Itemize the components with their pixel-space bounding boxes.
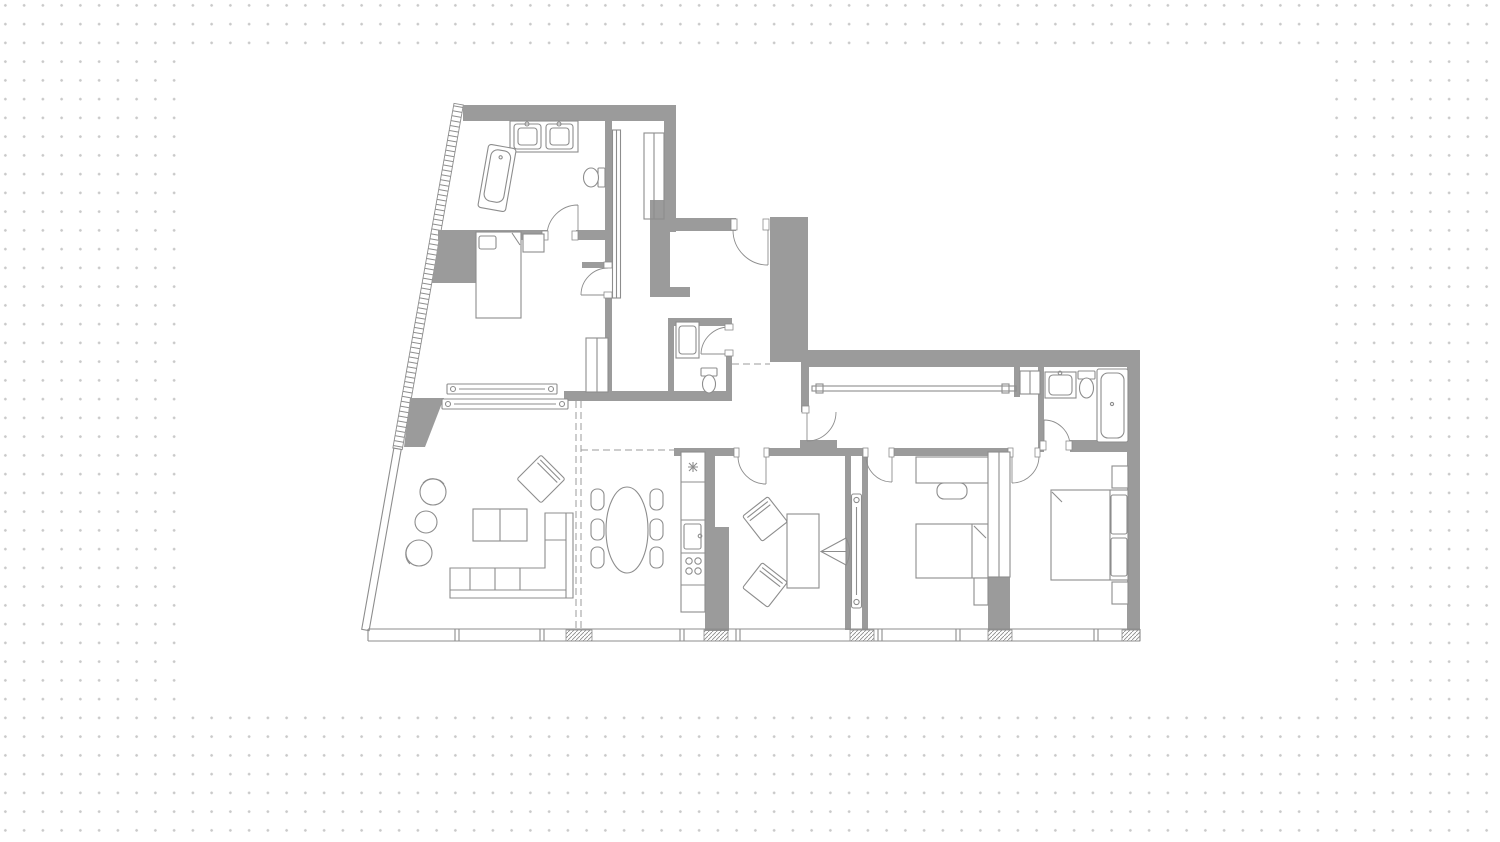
dining-area	[591, 487, 663, 573]
master-bathroom	[478, 121, 605, 212]
wall-wing-top	[808, 350, 1140, 367]
facade-panel-hatch	[1122, 630, 1140, 641]
lounge-chair-icon	[420, 479, 446, 505]
nightstand	[1112, 466, 1128, 488]
wall-wedge-lower	[404, 398, 444, 447]
sink-icon	[1045, 371, 1076, 398]
desk-icon	[916, 457, 988, 483]
toilet-icon	[584, 168, 606, 187]
living-room	[406, 455, 573, 598]
side-table-icon	[415, 511, 437, 533]
wall-rooms-top-2	[766, 448, 866, 456]
south-window-wall	[368, 629, 1140, 641]
desk-icon	[787, 514, 819, 588]
study	[743, 494, 862, 608]
nightstand	[1112, 582, 1128, 604]
bed-icon	[476, 232, 521, 318]
sliding-door-icon	[852, 494, 862, 608]
floor-plan-drawing	[0, 0, 1500, 842]
wall-kitchen-lower	[705, 527, 729, 631]
wall-corridor-corner	[800, 440, 837, 448]
nightstand	[523, 234, 544, 252]
double-bed-icon	[1051, 490, 1128, 580]
door-swing-icon-master-bath	[542, 205, 578, 240]
bathroom-2	[1045, 369, 1128, 442]
armchair-icon	[743, 497, 788, 542]
lounge-chair-icon	[406, 540, 432, 566]
wardrobe	[988, 452, 1010, 577]
bedroom-3	[1051, 466, 1128, 604]
wall-top	[463, 105, 676, 121]
desk-chair-icon	[937, 483, 967, 499]
toilet-icon	[701, 368, 717, 393]
bed-icon	[916, 524, 988, 578]
toilet-icon	[1078, 371, 1095, 398]
door-swing-icon-bedroom-3	[1008, 448, 1040, 483]
wall-wc-left	[668, 318, 674, 398]
hall-corridor	[812, 371, 1040, 394]
facade-panel-hatch	[566, 630, 592, 641]
bathtub-icon	[1097, 369, 1128, 442]
sliding-door-icon	[442, 384, 568, 409]
kitchen	[681, 452, 705, 612]
fridge-icon	[688, 462, 698, 472]
corridor-wardrobe	[812, 384, 1016, 393]
armchair-icon	[743, 563, 788, 608]
wall-corridor-door	[801, 362, 809, 412]
facade-panel-hatch	[988, 630, 1012, 641]
pillow	[1111, 495, 1127, 534]
door-swing-icon-entry	[731, 219, 769, 265]
screenshot-canvas: { "canvas": {"width": 1500, "height": 84…	[0, 0, 1500, 842]
wall-entry-top	[664, 218, 736, 231]
niche-cabinet	[1020, 371, 1040, 394]
wall-entry-column	[770, 217, 808, 362]
walls	[404, 105, 1140, 631]
sink-icon	[676, 322, 699, 358]
facade-panel-hatch	[704, 630, 728, 641]
dashed-zone-lines	[576, 364, 770, 629]
door-swing-icon-bathroom-2	[1040, 420, 1072, 450]
pillow	[479, 236, 496, 249]
dining-table-icon	[606, 487, 648, 573]
door-swing-icon-wc	[701, 324, 733, 356]
door-swing-icon-corridor	[802, 406, 836, 441]
wall-masterbath-right	[605, 121, 612, 263]
facade-panel-hatch	[850, 630, 874, 641]
door-swing-icon-study	[734, 448, 769, 484]
wardrobe	[586, 338, 608, 392]
window-glass-band	[362, 448, 402, 630]
bathtub-icon	[478, 144, 517, 212]
fan-symbol	[821, 538, 849, 565]
armchair-icon	[517, 455, 565, 503]
wall-kitchen-upper	[705, 448, 715, 527]
pillow	[1111, 538, 1127, 576]
wall-right	[1127, 350, 1140, 630]
wall-dressing-right	[650, 200, 670, 297]
wall-bed23-divider	[988, 577, 1010, 630]
coffee-table-icon	[473, 509, 527, 541]
wall-bed2-left	[862, 448, 868, 630]
nightstand	[974, 578, 988, 605]
wc	[676, 322, 717, 393]
wall-niche	[1014, 366, 1020, 397]
wall-dressing-connector	[664, 287, 690, 297]
